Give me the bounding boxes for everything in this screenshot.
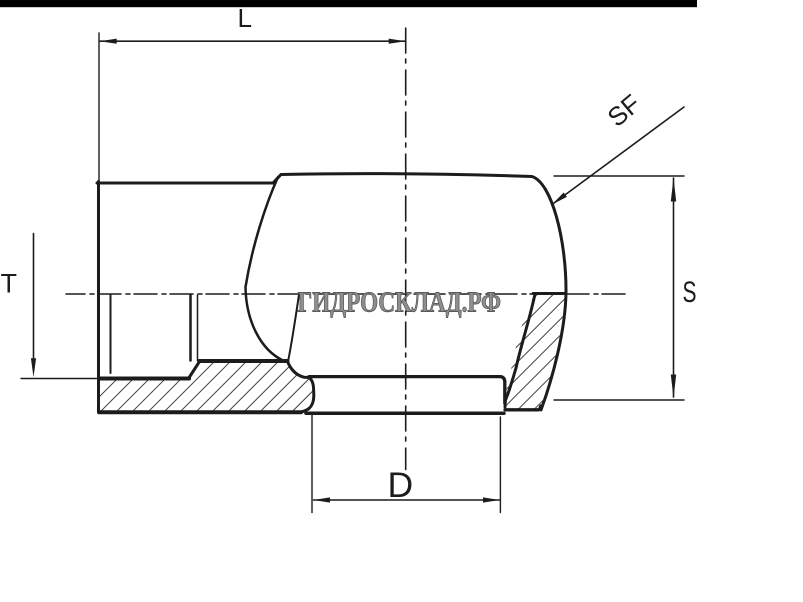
svg-text:S: S — [683, 276, 697, 309]
svg-text:ГИДРОСКЛАД.РФ: ГИДРОСКЛАД.РФ — [298, 287, 502, 319]
svg-text:D: D — [388, 465, 414, 505]
svg-text:T: T — [1, 269, 18, 299]
svg-text:L: L — [238, 5, 253, 33]
